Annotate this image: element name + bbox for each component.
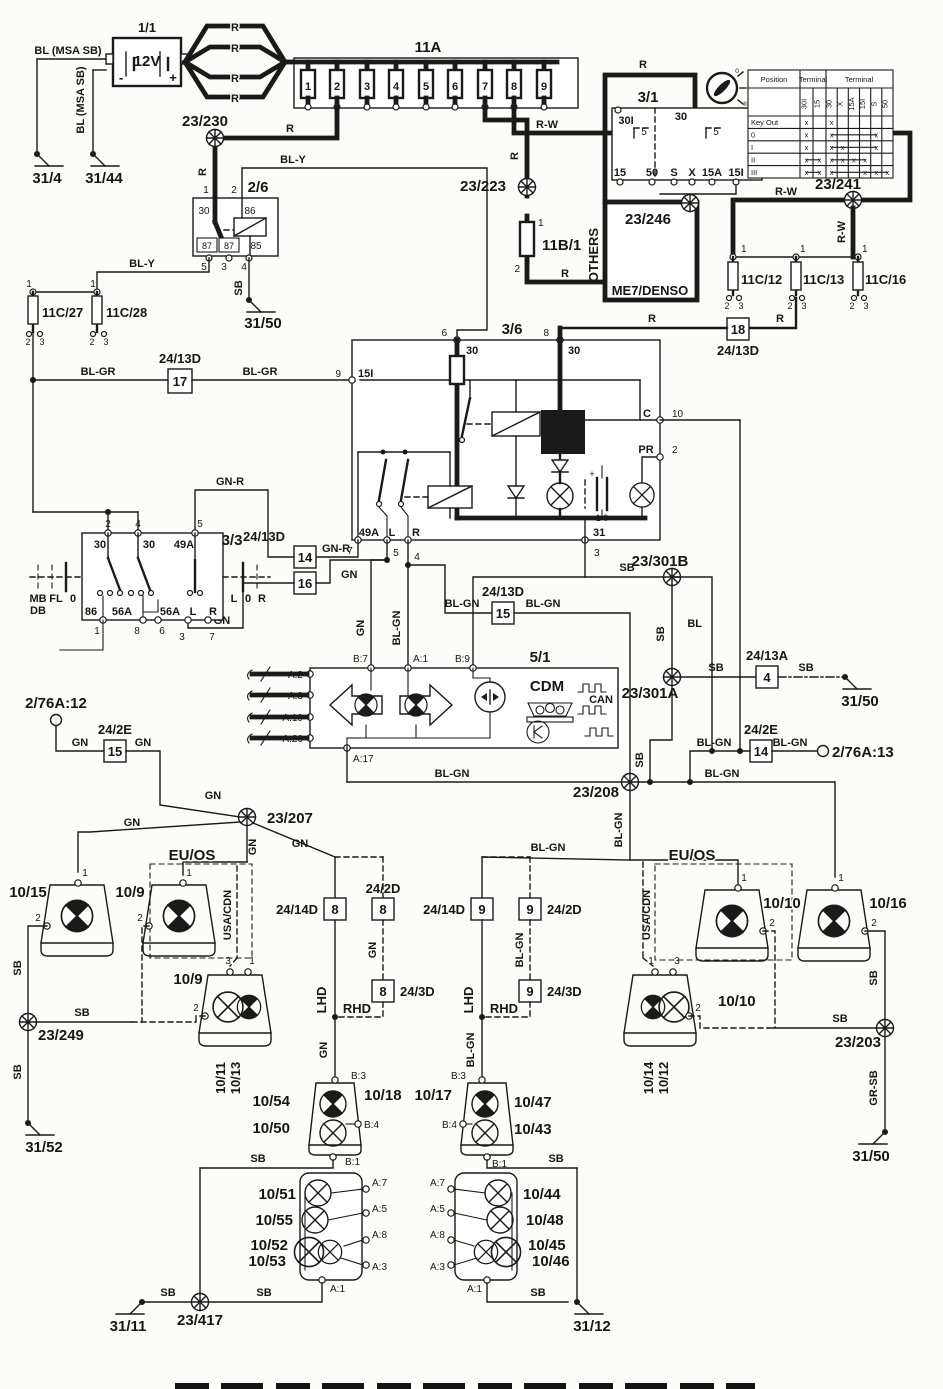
wire-label: GN (124, 817, 141, 829)
wire-label: BL (MSA SB) (34, 45, 102, 57)
pin-number: 2 (25, 337, 30, 347)
fuse-id: 11C/16 (865, 272, 906, 287)
lever-label: DB (30, 605, 46, 617)
ecm-others: OTHERS (586, 228, 601, 283)
col-label: S (869, 101, 878, 106)
pin-label: B:7 (353, 654, 368, 665)
fuse-id: 11C/27 (42, 305, 83, 320)
wire-label: BL-GN (526, 598, 561, 610)
connector-pin: 8 (379, 984, 386, 999)
row-label: Key Out (751, 118, 779, 127)
connector-pin: 18 (731, 322, 745, 337)
harness-diamond: R R R R (185, 22, 296, 105)
connector-id: 24/13D (243, 529, 285, 544)
wire-label: SB (160, 1287, 175, 1299)
lamp-id: 10/54 (252, 1093, 290, 1110)
market-label: EU/OS (169, 847, 216, 864)
pin-number: 1 (94, 626, 100, 637)
component-id: 3/1 (638, 89, 659, 106)
connector-id: 24/2E (744, 722, 778, 737)
lamp-10-10-eu: 1 2 10/10 (696, 873, 801, 961)
wire-label: BL-GN (435, 768, 470, 780)
pin-number: 1 (838, 873, 844, 884)
pin-label: 85 (250, 241, 262, 252)
connector-column-right: 9 24/14D 9 24/2D BL-GN 9 24/3D LHD RHD B… (423, 898, 582, 1080)
lever-label: FL (49, 593, 63, 605)
key-pos: 0 (735, 68, 739, 75)
pin-label: R (209, 606, 217, 618)
pin-label: 30 (94, 539, 106, 551)
wire-label: BL-Y (280, 154, 306, 166)
splice-label: 23/417 (177, 1312, 223, 1329)
lamp-id: 10/15 (9, 884, 47, 901)
market-label: USA/CDN (641, 890, 653, 940)
pin-number: 3 (221, 262, 227, 273)
wire-label: BL-GN (531, 842, 566, 854)
pin-label: A:17 (353, 754, 374, 765)
splice-label: 23/207 (267, 810, 313, 827)
wire-label: BL-GN (613, 813, 625, 848)
lamp-id: 10/47 (514, 1094, 552, 1111)
terminal-label: 15 (614, 167, 626, 179)
table-header: Terminal (799, 75, 828, 84)
hazard-indicator-icon (475, 682, 505, 712)
splice-label: 23/223 (460, 178, 506, 195)
wire-label: GN (135, 737, 152, 749)
market-label: USA/CDN (222, 890, 234, 940)
wire-label: SB (250, 1153, 265, 1165)
wire-label: R (231, 22, 239, 34)
pin-number: 2 (35, 913, 41, 924)
splice-label: 23/208 (573, 784, 619, 801)
wire-label: GN (318, 1042, 330, 1059)
wire-label: SB (548, 1153, 563, 1165)
lever-label: 0 (245, 593, 251, 605)
ground-label: 31/50 (852, 1148, 890, 1165)
wire-label: R (776, 313, 784, 325)
col-label: 15A (847, 97, 856, 110)
market-label: RHD (343, 1001, 371, 1016)
pin-number: 2 (231, 185, 237, 196)
front-lamps-right: EU/OS 1 2 10/10 1 2 10/16 1 3 2 10/10 10… (624, 847, 907, 1165)
connector-pin: 8 (379, 902, 386, 917)
col-label: 15 (813, 100, 822, 108)
fuses-11c27-28: 1 1 11C/27 11C/28 2 3 2 3 (25, 279, 147, 347)
stalk-lever-left: MB DB FL 0 (29, 563, 82, 617)
pin-number: 1 (741, 244, 747, 255)
splice-label: 23/246 (625, 211, 671, 228)
connector-label: 2/76A:13 (832, 744, 894, 761)
lamp-id: 10/18 (364, 1087, 402, 1104)
wire-label: BL (MSA SB) (75, 66, 87, 134)
fuse-number: 4 (393, 81, 400, 93)
pin-number: 5 (393, 548, 399, 559)
mark: x (805, 143, 809, 152)
pin-label: 49A (174, 539, 194, 551)
pin-label: A:8 (430, 1230, 445, 1241)
relay-26: 2/6 1 2 30 86 87 87 85 5 3 4 SB 31/50 BL… (97, 154, 487, 337)
connector-id: 24/13D (717, 343, 759, 358)
pin-number: 2 (514, 264, 520, 275)
connector-id: 24/3D (400, 984, 435, 999)
pin-label: B:3 (451, 1071, 466, 1082)
pin-label: 87 (224, 241, 234, 251)
pin-number: 3 (594, 548, 600, 559)
ignition-switch: R 3/1 30I 5 30 5 15 50 S X 15A 15I 0 I I… (605, 59, 762, 202)
wire-label: R (561, 268, 569, 280)
wire-label: R (231, 73, 239, 85)
wire-label: BL (687, 618, 702, 630)
wire-label: R (639, 59, 647, 71)
lamp-id: 10/11 (213, 1062, 228, 1094)
wire-label: SB (12, 960, 24, 975)
wire-label: GR-SB (868, 1070, 880, 1106)
lever-label: 0 (70, 593, 76, 605)
pin-label: A:7 (430, 1178, 445, 1189)
splice-label: 23/301A (622, 685, 679, 702)
lamp-id: 10/50 (252, 1120, 290, 1137)
lamp-id: 10/16 (869, 895, 907, 912)
pin-number: 2 (672, 445, 678, 456)
pin-label: 56A (112, 606, 132, 618)
pin-label: A:1 (330, 1284, 345, 1295)
lamp-id: 10/9 (115, 884, 144, 901)
wire-label: R-W (775, 186, 798, 198)
pin-label: 86 (244, 206, 256, 217)
connector-id: 24/3D (547, 984, 582, 999)
pin-number: 1 (26, 279, 32, 290)
splice-label: 23/301B (632, 553, 689, 570)
ecm-name: ME7/DENSO (612, 283, 689, 298)
wire-label: GN (367, 942, 379, 959)
pin-label: A:3 (430, 1262, 445, 1273)
schematic-canvas: 1/1 12V - + 31/4 31/44 BL (MSA SB) BL (M… (0, 0, 943, 1389)
wire-label: R-W (836, 220, 848, 243)
wire-label: R (509, 152, 521, 160)
key-dial-icon: 0 I II III (707, 68, 752, 108)
stalk-lever-right: L 0 R (223, 563, 270, 605)
fuse-number: 2 (334, 81, 340, 93)
ground-label: 31/11 (110, 1318, 147, 1335)
table-header: Terminal (845, 75, 874, 84)
pin-label: A:7 (372, 1178, 387, 1189)
lamp-id: 10/14 (641, 1061, 656, 1094)
cut-off-caption (175, 1383, 755, 1389)
ground-label: 31/50 (244, 315, 282, 332)
wire-label: SB (798, 662, 813, 674)
col-label: 50 (880, 100, 889, 108)
lamp-id: 10/55 (255, 1212, 293, 1229)
pin-number: 9 (335, 369, 341, 380)
wire-label: SB (233, 280, 245, 295)
wire-label: SB (12, 1064, 24, 1079)
blgn-chain-right: BL-GN 23/208 BL-GN BL-GN BL-GN USA/CDN (347, 748, 835, 958)
pin-number: 4 (135, 519, 141, 530)
pin-number: 3 (674, 956, 680, 967)
pin-number: 2 (787, 301, 792, 311)
lamp-10-15: 1 2 10/15 (9, 868, 113, 956)
lamp-id: 10/17 (414, 1087, 452, 1104)
pin-label: L (389, 527, 396, 539)
col-label: 15I (858, 99, 867, 109)
lamp-id: 10/44 (523, 1186, 561, 1203)
lamp-id: 10/12 (656, 1062, 671, 1095)
battery-plus: + (169, 70, 177, 85)
pin-number: 1 (90, 279, 96, 290)
lever-label: R (258, 593, 266, 605)
wire-label: GN (355, 620, 367, 637)
ecm-box: 23/246 OTHERS ME7/DENSO (586, 195, 699, 301)
connector-pin: 17 (173, 374, 187, 389)
connector-pin: 9 (526, 902, 533, 917)
component-id: 2/6 (248, 179, 269, 196)
pin-number: 3 (103, 337, 108, 347)
fuse-number: 5 (423, 81, 429, 93)
wire-label: BL-GN (445, 598, 480, 610)
connector-id: 24/2D (547, 902, 582, 917)
fuse-number: 8 (511, 81, 517, 93)
lamp-id: 10/43 (514, 1121, 552, 1138)
pin-number: 2 (695, 1003, 701, 1014)
battery-voltage: 12V (134, 53, 161, 70)
wire-label: GN-R (216, 476, 244, 488)
fuse-id: 11C/13 (803, 272, 844, 287)
pin-number: 3 (863, 301, 868, 311)
wire-label: GN (341, 569, 358, 581)
splice-label: 23/203 (835, 1034, 881, 1051)
market-label: EU/OS (669, 847, 716, 864)
fuse-11c16: 111C/1623 (849, 244, 906, 311)
terminal-label: 30 (675, 111, 687, 123)
row-label: I (751, 143, 753, 152)
wire-label: GN (247, 839, 259, 856)
ground-label: 31/44 (85, 170, 123, 187)
pin-number: 2 (724, 301, 729, 311)
wire-label: SB (74, 1007, 89, 1019)
cdm-module: 5/1 B:7 A:1 B:9 A:17 A:2 A:3 A:19 A:20 C… (248, 649, 618, 765)
wire-label: GN (205, 790, 222, 802)
battery-id: 1/1 (138, 20, 156, 35)
connector-pin: 15 (496, 606, 510, 621)
connector-column-left: 8 24/14D 8 24/2D GN 8 24/3D LHD RHD GN (276, 881, 435, 1080)
pin-number: 1 (82, 868, 88, 879)
pin-number: 3 (39, 337, 44, 347)
stalk-switch-33: 3/3 2 4 5 30 30 49A 86 56A 56A L R 1 8 6… (29, 509, 270, 650)
pin-number: 2 (137, 913, 143, 924)
rear-cluster-right: A:7 A:5 A:8 A:3 A:1 10/44 10/48 10/45 10… (430, 1173, 570, 1302)
battery-minus: - (119, 70, 123, 85)
connector-pin: 14 (298, 550, 313, 565)
lamp-10-10-usa: 1 3 2 10/10 10/14 10/12 (624, 956, 756, 1094)
pin-label: B:4 (442, 1120, 457, 1131)
pin-label: B:3 (351, 1071, 366, 1082)
lamp-10-9-usa: 3 1 2 10/9 10/11 10/13 (173, 956, 271, 1094)
component-id: 3/6 (502, 321, 523, 338)
row-label: 0 (751, 131, 755, 140)
row-label: III (751, 168, 757, 177)
wire-label: GN (72, 737, 89, 749)
fuse-id: 11C/28 (106, 305, 147, 320)
wire-label: SB (634, 752, 646, 767)
pin-number: 8 (134, 626, 140, 637)
ground-label: 31/4 (32, 170, 62, 187)
splice-label: 23/249 (38, 1027, 84, 1044)
pin-label: 15I (358, 368, 373, 380)
pin-label: 30 (198, 206, 210, 217)
wire-label: SB (256, 1287, 271, 1299)
cdm-name: CDM (530, 678, 564, 695)
pin-label: 86 (85, 606, 97, 618)
wire-label: GN-R (322, 543, 350, 555)
pin-label: B:1 (345, 1157, 360, 1168)
wire-label: SB (530, 1287, 545, 1299)
ignition-table: Position Terminal Terminal 30I 15 30 X 1… (748, 70, 893, 178)
pin-label: R (412, 527, 420, 539)
pin-number: 2 (193, 1003, 199, 1014)
lamp-10-9-eu: 1 2 10/9 (115, 868, 215, 956)
row-label: II (751, 156, 755, 165)
fuse-number: 6 (452, 81, 458, 93)
market-label: LHD (314, 987, 329, 1014)
pin-number: 2 (849, 301, 854, 311)
battery-section: 1/1 12V - + 31/4 31/44 BL (MSA SB) BL (M… (32, 20, 188, 187)
wire-label: R (197, 168, 209, 176)
connector-id: 24/14D (423, 902, 465, 917)
pin-label: 30 (466, 345, 478, 357)
lamp-id: 10/45 (528, 1237, 566, 1254)
pin-label: A:5 (372, 1204, 387, 1215)
mark: x (830, 118, 834, 127)
terminal-label: X (688, 167, 696, 179)
pin-number: 10 (672, 409, 684, 420)
splice-label: 23/230 (182, 113, 228, 130)
lamp-id: 10/53 (248, 1253, 286, 1270)
pin-number: 3 (801, 301, 806, 311)
pin-label: PR (638, 444, 653, 456)
pin-number: 5 (197, 519, 203, 530)
fuse-id: 11C/12 (741, 272, 782, 287)
pin-number: 1 (249, 956, 255, 967)
connector-pin: 4 (763, 670, 771, 685)
component-id: 3/3 (222, 532, 243, 549)
col-label: 30 (825, 100, 834, 108)
connector-pin: 8 (331, 902, 338, 917)
pin-label: A:1 (413, 654, 428, 665)
pin-label: A:5 (430, 1204, 445, 1215)
connector-label: 2/76A:12 (25, 695, 87, 712)
connector-id: 24/13D (482, 584, 524, 599)
pin-label: 49A (359, 527, 379, 539)
terminal-label: 15I (728, 167, 743, 179)
pin-label: A:3 (372, 1262, 387, 1273)
lamp-id: 10/46 (532, 1253, 570, 1270)
wire-label: BL-GN (705, 768, 740, 780)
pin-number: 4 (414, 552, 420, 563)
pin-number: 3 (179, 632, 185, 643)
wire-label: BL-GR (243, 366, 278, 378)
connector-id: 24/13A (746, 648, 789, 663)
wire-label: R (286, 123, 294, 135)
pin-label: B:9 (455, 654, 470, 665)
pin-number: 8 (543, 328, 549, 339)
pin-label: B:4 (364, 1120, 379, 1131)
wire-label: GN (292, 838, 309, 850)
pin-number: 1 (186, 868, 192, 879)
wire-label: BL-GN (697, 737, 732, 749)
pin-number: 6 (441, 328, 447, 339)
fusebox-11a: 11A 1 2 3 4 5 6 7 8 9 (294, 39, 578, 110)
lamp-10-16: 1 2 10/16 (798, 873, 907, 961)
front-lamps-left: EU/OS USA/CDN 1 2 10/15 1 2 10/9 3 1 2 1… (9, 847, 271, 1156)
connector-pin: 9 (478, 902, 485, 917)
blgr-run: BL-GR 17 24/13D BL-GR 9 (30, 332, 349, 512)
pin-label: L (190, 606, 197, 618)
wire-label: BL-GN (391, 611, 403, 646)
pin-label: A:8 (372, 1230, 387, 1241)
pin-number: 7 (209, 632, 215, 643)
pin-number: 1 (538, 218, 544, 229)
connector-id: 24/14D (276, 902, 318, 917)
pin-label: 31 (593, 527, 605, 539)
ground-label: 31/12 (573, 1318, 611, 1335)
mark: x (805, 131, 809, 140)
pin-number: 2 (105, 519, 111, 530)
pin-number: 6 (159, 626, 165, 637)
wire-label: BL-GN (465, 1033, 477, 1068)
terminal-label: 50 (646, 167, 658, 179)
market-label: LHD (461, 987, 476, 1014)
connector-id: 24/13D (159, 351, 201, 366)
wiring-diagram-page: 1/1 12V - + 31/4 31/44 BL (MSA SB) BL (M… (0, 0, 943, 1389)
wire-label: SB (655, 626, 667, 641)
can-label: CAN (589, 694, 613, 706)
connector-pin: 15 (108, 744, 122, 759)
wire-label: SB (868, 970, 880, 985)
component-id: 5/1 (530, 649, 551, 666)
pin-label: 56A (160, 606, 180, 618)
lamp-id: 10/10 (763, 895, 801, 912)
connector-pin: 9 (526, 984, 533, 999)
fuse-11c12: 111C/1223 (724, 244, 782, 311)
wire-label: SB (832, 1013, 847, 1025)
pin-number: 3 (738, 301, 743, 311)
pin-number: 2 (769, 918, 775, 929)
sb-chain-right: SB 23/301A SB 4 24/13A SB 31/50 SB 14 24… (622, 420, 894, 782)
wire-label: BL-GN (514, 933, 526, 968)
cap-plus: + (589, 469, 594, 479)
connector-id: 24/2D (366, 881, 401, 896)
pin-label: C (643, 408, 651, 420)
pin-number: 1 (741, 873, 747, 884)
fuse-number: 3 (364, 81, 370, 93)
wire-label: R (231, 93, 239, 105)
table-header: Position (761, 75, 788, 84)
col-label: 30I (800, 99, 809, 109)
lamp-id: 10/51 (258, 1186, 296, 1203)
pin-number: 1 (862, 244, 868, 255)
wire-label: BL-GN (773, 737, 808, 749)
pin-label: 87 (202, 241, 212, 251)
lamp-id: 10/10 (718, 993, 756, 1010)
pin-number: 1 (800, 244, 806, 255)
pin-label: A:1 (467, 1284, 482, 1295)
lamp-id: 10/48 (526, 1212, 564, 1229)
connector-pin: 16 (298, 576, 312, 591)
fuse-number: 9 (541, 81, 547, 93)
rear-cluster-left: A:7 A:5 A:8 A:3 A:1 10/51 10/55 10/52 10… (209, 1173, 387, 1302)
wire-label: SB (708, 662, 723, 674)
lamp-id: 10/52 (250, 1237, 288, 1254)
